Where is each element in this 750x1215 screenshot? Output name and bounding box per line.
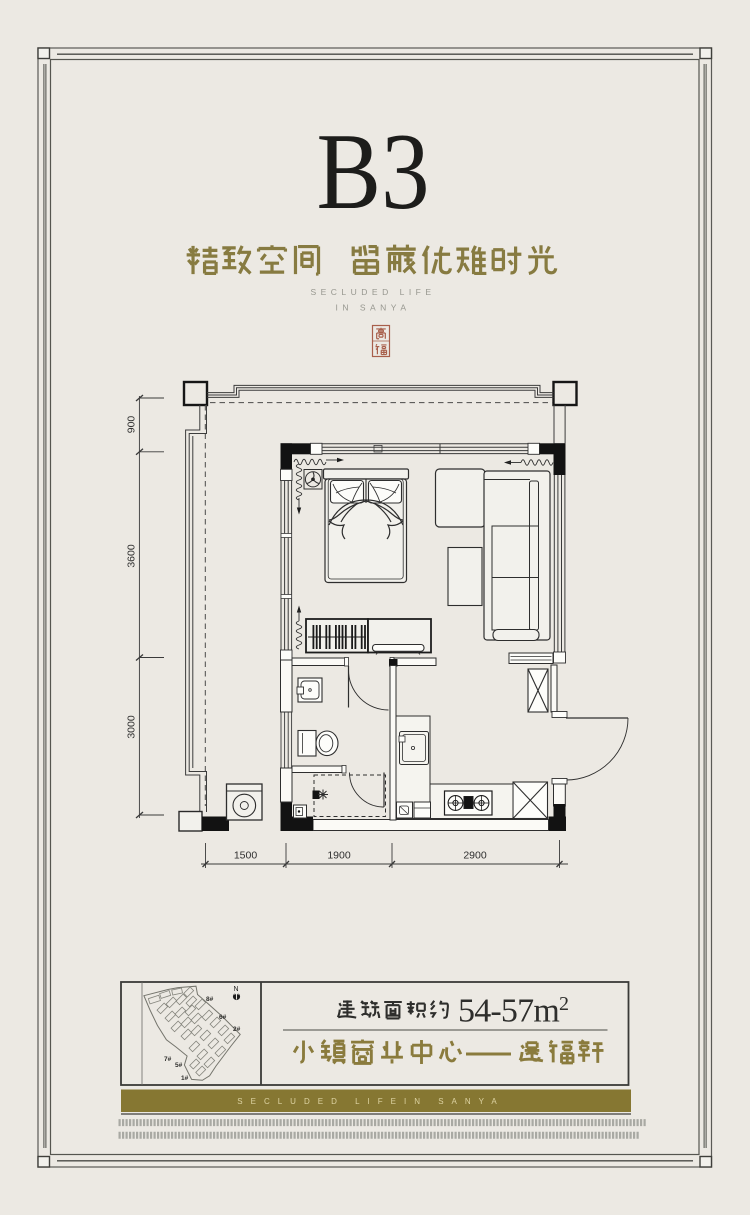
svg-text:1#: 1# xyxy=(181,1075,189,1082)
svg-text:900: 900 xyxy=(126,416,138,434)
svg-text:1900: 1900 xyxy=(327,850,351,862)
svg-text:IN SANYA: IN SANYA xyxy=(335,303,410,313)
svg-text:3600: 3600 xyxy=(126,544,138,568)
svg-text:SECLUDED LIFE: SECLUDED LIFE xyxy=(310,287,435,297)
svg-text:54-57m2: 54-57m2 xyxy=(458,993,568,1030)
svg-text:8#: 8# xyxy=(206,996,214,1003)
svg-text:SECLUDED LIFEIN SANYA: SECLUDED LIFEIN SANYA xyxy=(237,1097,504,1106)
svg-text:2900: 2900 xyxy=(463,850,487,862)
svg-text:1500: 1500 xyxy=(234,850,258,862)
svg-text:7#: 7# xyxy=(164,1056,172,1063)
svg-text:N: N xyxy=(234,986,239,993)
svg-text:6#: 6# xyxy=(219,1014,227,1021)
svg-text:5#: 5# xyxy=(175,1062,183,1069)
svg-text:2#: 2# xyxy=(233,1026,241,1033)
svg-text:B3: B3 xyxy=(317,111,430,232)
svg-text:3000: 3000 xyxy=(126,715,138,739)
